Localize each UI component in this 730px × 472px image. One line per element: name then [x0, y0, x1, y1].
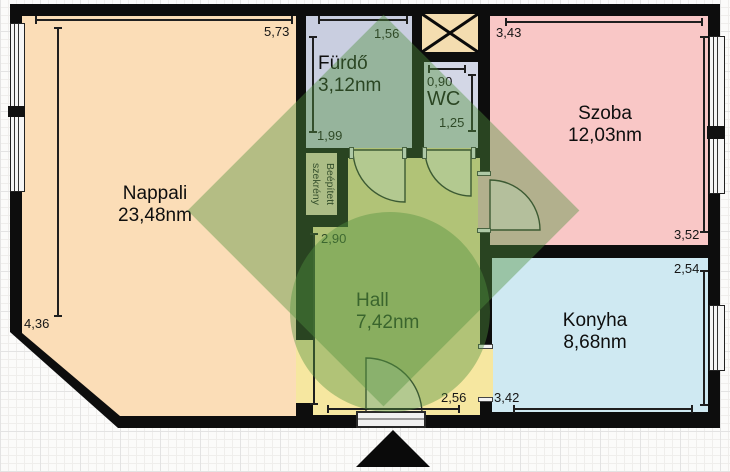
dim-line-nappali-top [35, 19, 293, 21]
szoba-door-jamb-top [477, 171, 491, 176]
room-hall-name: Hall [356, 290, 419, 312]
dim-szoba-right: 3,52 [674, 227, 699, 242]
room-nappali-area: 23,48nm [80, 205, 230, 227]
furdo-door-swing [353, 150, 405, 202]
room-szoba-area: 12,03nm [525, 125, 685, 147]
dim-line-hall-bottom [327, 408, 460, 410]
room-hall-area: 7,42nm [356, 312, 419, 334]
dim-line-nappali-left [57, 27, 59, 317]
room-konyha-label: Konyha 8,68nm [515, 310, 675, 355]
dim-furdo-left: 1,99 [317, 128, 342, 143]
dim-wc-right: 1,25 [439, 115, 464, 130]
dim-konyha-right: 2,54 [674, 261, 699, 276]
window-divider-szoba [707, 126, 725, 139]
room-nappali-name: Nappali [80, 183, 230, 205]
room-szoba-name: Szoba [525, 103, 685, 125]
dim-hall-left: 2,90 [321, 231, 346, 246]
window-konyha-right [709, 305, 725, 371]
room-szoba-label: Szoba 12,03nm [525, 103, 685, 148]
dim-line-szoba-right [703, 36, 705, 233]
entrance-marker-triangle [356, 430, 430, 467]
window-divider-left [8, 106, 25, 117]
wc-door-swing [425, 150, 471, 196]
dim-line-hall-left [313, 233, 315, 405]
shaft-x-icon [422, 14, 478, 52]
konyha-passage-jamb-top [478, 344, 493, 349]
dim-wc-top: 0,90 [427, 74, 452, 89]
dim-line-wc-right [471, 74, 473, 132]
dim-line-konyha-right [703, 270, 705, 406]
room-konyha-area: 8,68nm [515, 332, 675, 354]
furdo-door-jamb-right [402, 147, 407, 159]
dim-line-szoba-top [505, 21, 703, 23]
room-furdo-label: Fürdő 3,12nm [318, 53, 381, 98]
room-konyha-name: Konyha [515, 310, 675, 332]
dim-hall-bottom: 2,56 [441, 390, 466, 405]
dim-nappali-top: 5,73 [264, 24, 289, 39]
dim-furdo-top: 1,56 [374, 26, 399, 41]
dim-line-furdo-left [312, 36, 314, 133]
room-furdo-area: 3,12nm [318, 75, 381, 97]
room-nappali-label: Nappali 23,48nm [80, 183, 230, 228]
furdo-door-jamb-left [349, 147, 354, 159]
window-szoba-right [709, 36, 725, 194]
dim-szoba-top: 3,43 [496, 25, 521, 40]
entrance-door [356, 411, 426, 428]
dim-line-wc-top [428, 68, 466, 70]
szoba-door-swing [490, 180, 540, 230]
konyha-passage-jamb-bottom [478, 397, 493, 402]
wc-door-jamb-right [471, 147, 476, 159]
entrance-door-leaf [358, 418, 424, 420]
dim-konyha-bottom: 3,42 [494, 390, 519, 405]
dim-nappali-left: 4,36 [24, 316, 49, 331]
room-furdo-name: Fürdő [318, 53, 381, 75]
entrance-door-swing [366, 358, 422, 414]
floor-plan: Beépített szekrény 5,73 4,36 [0, 0, 730, 472]
wc-door-jamb-left [422, 147, 427, 159]
dim-line-konyha-bottom [513, 408, 693, 410]
room-hall-label: Hall 7,42nm [356, 290, 419, 335]
dim-line-furdo-top [318, 19, 408, 21]
szoba-door-jamb-bottom [477, 228, 491, 233]
room-wc-label: WC [427, 88, 460, 112]
